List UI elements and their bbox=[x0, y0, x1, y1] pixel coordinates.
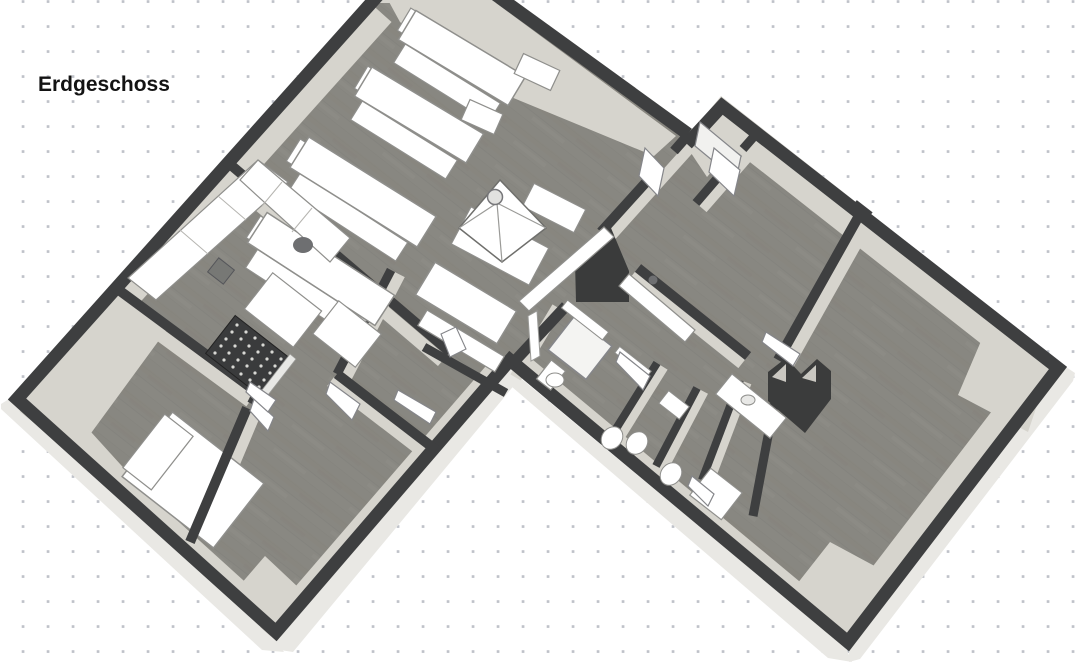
svg-text:Erdgeschoss: Erdgeschoss bbox=[38, 73, 170, 96]
